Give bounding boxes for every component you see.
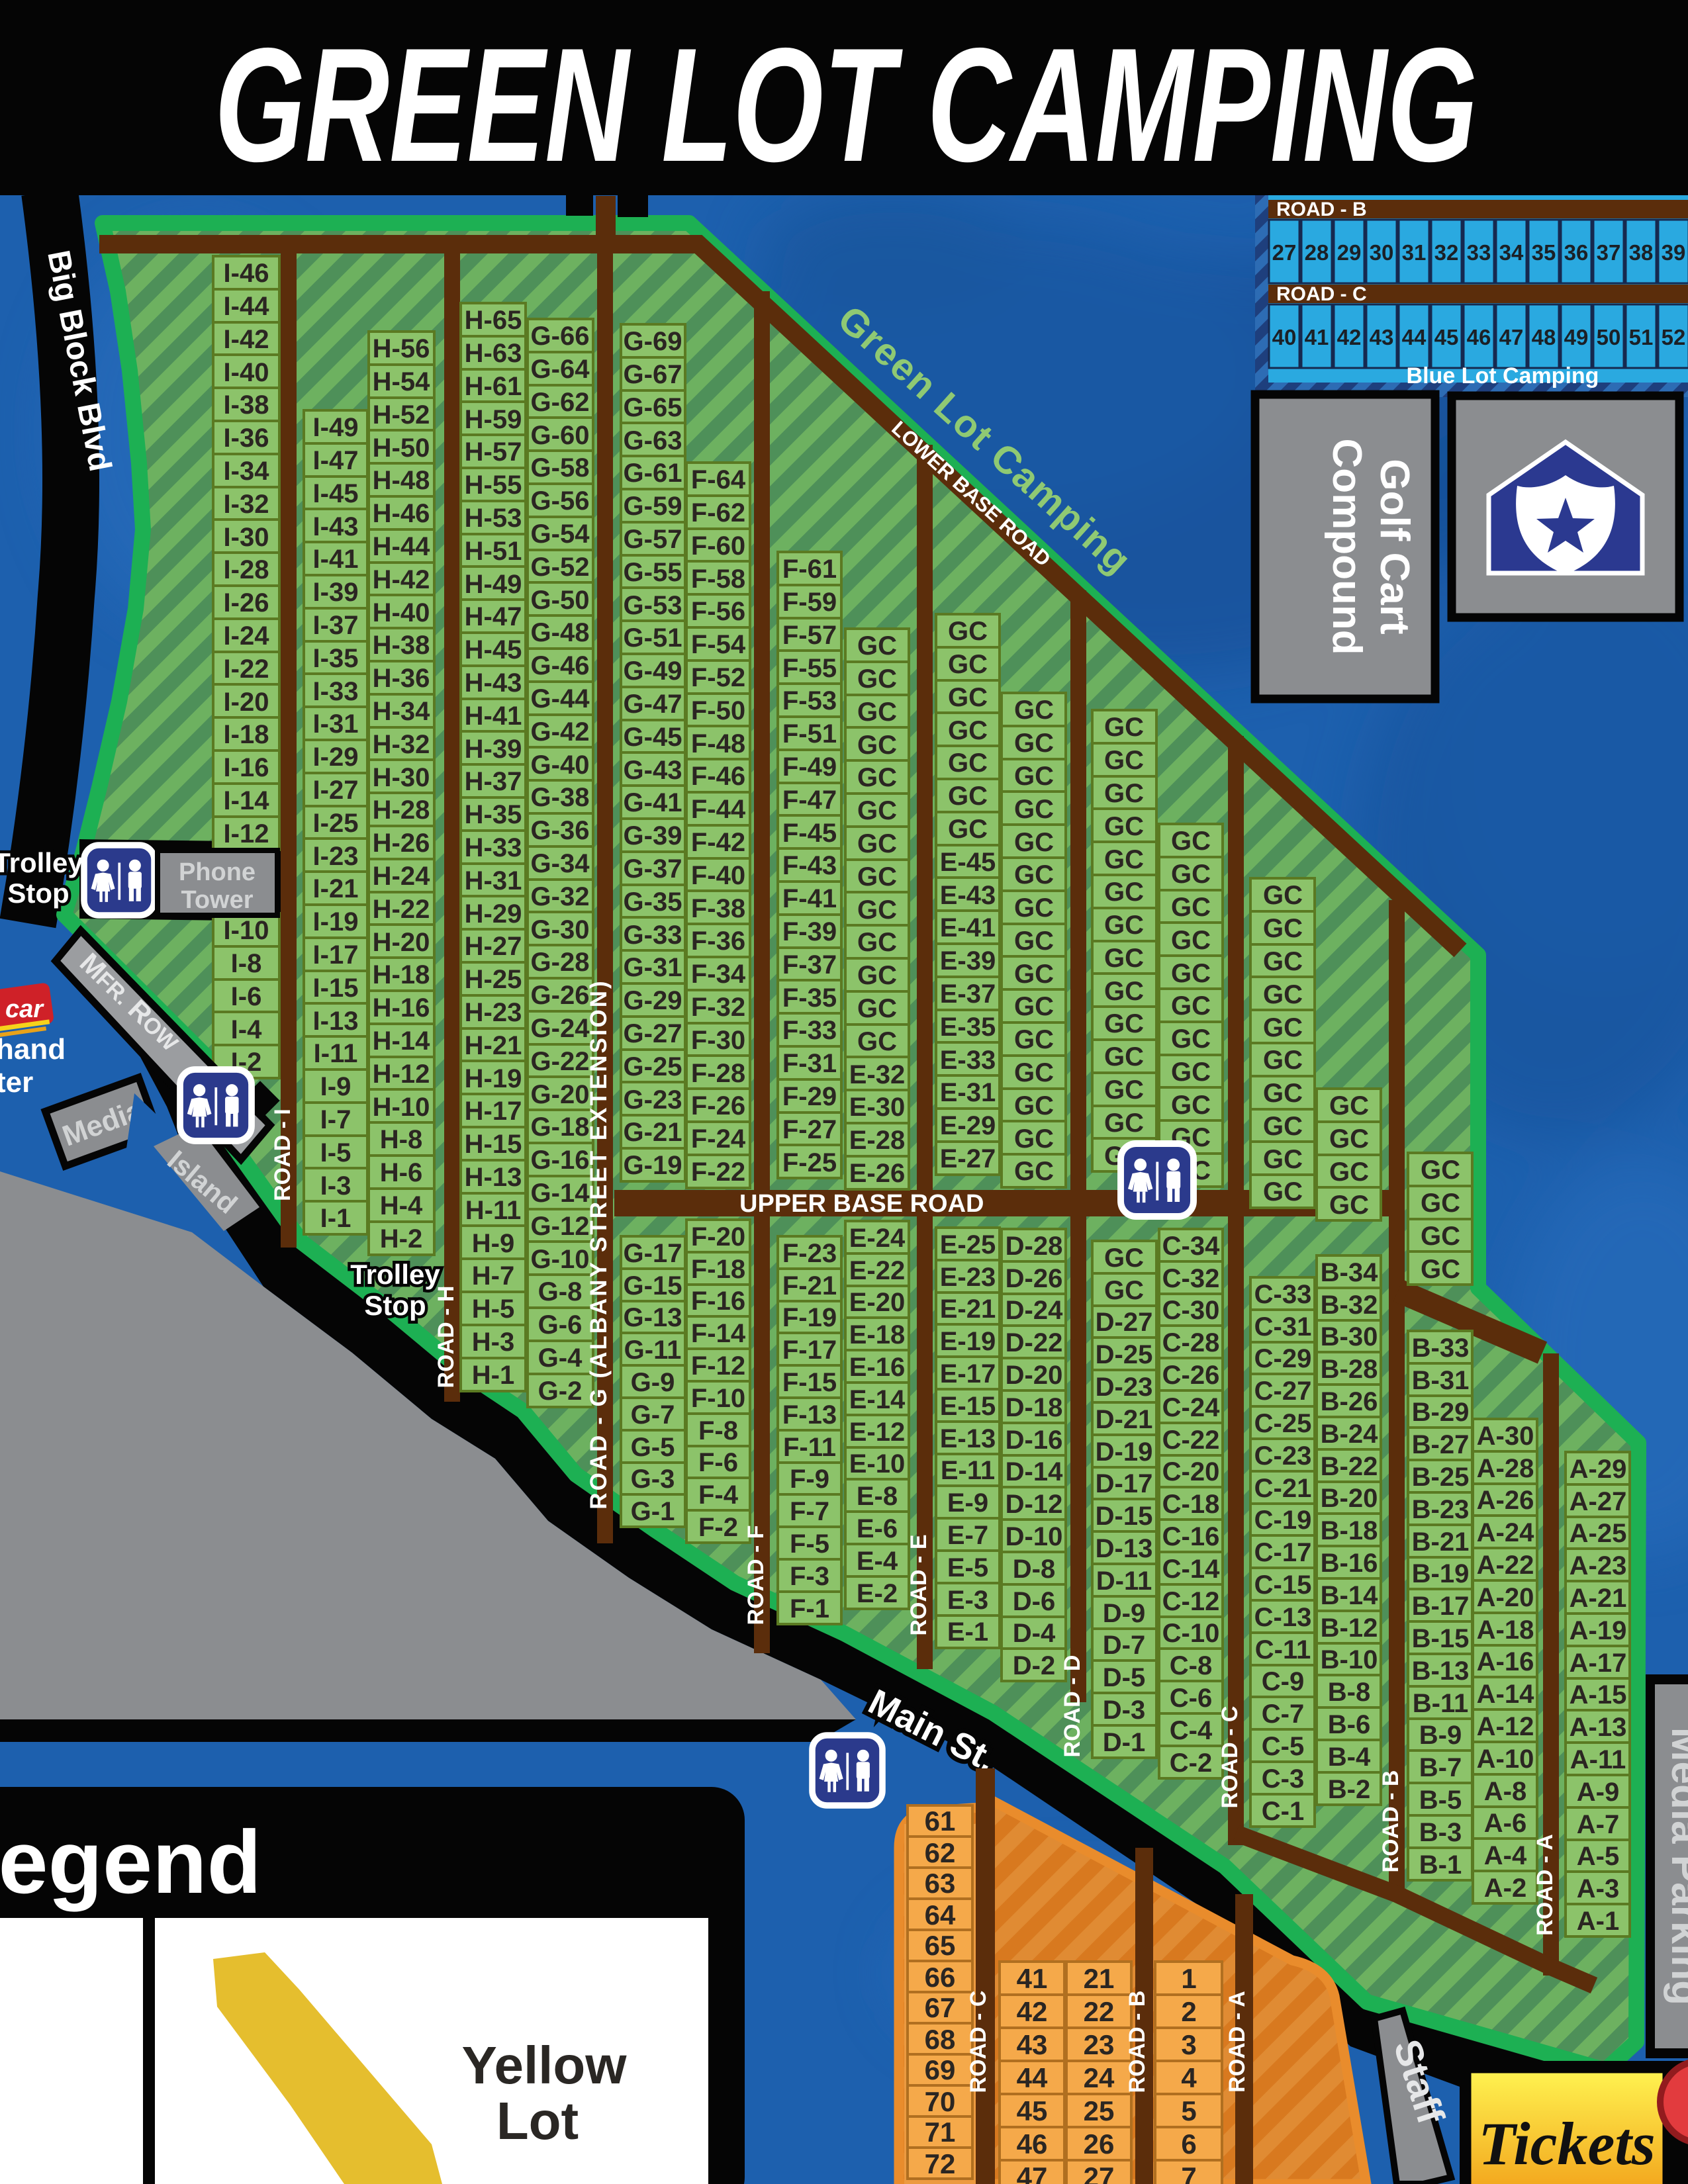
svg-text:F-6: F-6 bbox=[698, 1448, 738, 1477]
svg-text:G-33: G-33 bbox=[624, 921, 682, 950]
svg-text:GC: GC bbox=[1014, 1124, 1054, 1154]
svg-text:H-24: H-24 bbox=[373, 862, 430, 891]
svg-text:GC: GC bbox=[857, 631, 897, 660]
svg-text:47: 47 bbox=[1017, 2161, 1048, 2184]
svg-text:D-5: D-5 bbox=[1103, 1663, 1145, 1692]
svg-text:G-67: G-67 bbox=[624, 360, 682, 389]
svg-text:E-4: E-4 bbox=[857, 1547, 898, 1576]
svg-text:GC: GC bbox=[948, 650, 988, 679]
svg-text:I-3: I-3 bbox=[320, 1171, 352, 1201]
svg-text:F-38: F-38 bbox=[691, 894, 745, 923]
svg-text:C-22: C-22 bbox=[1162, 1426, 1220, 1455]
svg-text:C-4: C-4 bbox=[1170, 1716, 1213, 1745]
svg-text:ROAD - B: ROAD - B bbox=[1276, 199, 1367, 220]
svg-text:F-62: F-62 bbox=[691, 498, 745, 527]
svg-text:GC: GC bbox=[1014, 860, 1054, 889]
svg-text:C-9: C-9 bbox=[1262, 1667, 1304, 1696]
svg-text:F-1: F-1 bbox=[790, 1594, 829, 1623]
svg-text:ROAD - H: ROAD - H bbox=[434, 1286, 459, 1388]
svg-text:G-49: G-49 bbox=[624, 657, 682, 686]
svg-text:F-28: F-28 bbox=[691, 1059, 745, 1088]
svg-text:I-49: I-49 bbox=[313, 413, 359, 442]
svg-text:Stop: Stop bbox=[7, 878, 69, 909]
svg-text:I-22: I-22 bbox=[224, 655, 269, 684]
svg-text:I-39: I-39 bbox=[313, 578, 359, 607]
svg-text:C-11: C-11 bbox=[1255, 1635, 1311, 1664]
svg-text:G-50: G-50 bbox=[531, 586, 590, 615]
svg-text:D-19: D-19 bbox=[1096, 1437, 1153, 1467]
svg-text:B-29: B-29 bbox=[1412, 1398, 1470, 1427]
svg-text:G-55: G-55 bbox=[624, 558, 682, 587]
svg-text:Tower: Tower bbox=[181, 886, 253, 914]
svg-text:G-57: G-57 bbox=[624, 525, 682, 554]
svg-text:H-5: H-5 bbox=[472, 1295, 514, 1324]
svg-text:E-27: E-27 bbox=[940, 1144, 996, 1173]
svg-text:D-15: D-15 bbox=[1096, 1502, 1153, 1531]
svg-text:H-14: H-14 bbox=[373, 1026, 430, 1056]
svg-text:GC: GC bbox=[948, 749, 988, 778]
svg-text:I-43: I-43 bbox=[313, 512, 359, 541]
svg-text:GC: GC bbox=[1329, 1191, 1369, 1220]
svg-text:G-5: G-5 bbox=[631, 1433, 675, 1462]
svg-text:I-24: I-24 bbox=[224, 621, 270, 651]
svg-text:F-43: F-43 bbox=[782, 851, 837, 880]
svg-text:E-24: E-24 bbox=[849, 1224, 906, 1253]
svg-text:I-36: I-36 bbox=[224, 424, 269, 453]
svg-text:GC: GC bbox=[857, 763, 897, 792]
svg-text:UPPER BASE ROAD: UPPER BASE ROAD bbox=[739, 1190, 984, 1218]
svg-text:H-65: H-65 bbox=[465, 306, 522, 335]
svg-text:F-29: F-29 bbox=[782, 1082, 837, 1111]
svg-text:E-12: E-12 bbox=[849, 1418, 906, 1447]
svg-text:ROAD - D: ROAD - D bbox=[1060, 1655, 1085, 1758]
svg-text:GC: GC bbox=[857, 862, 897, 891]
svg-text:24: 24 bbox=[1084, 2062, 1115, 2093]
svg-text:B-33: B-33 bbox=[1412, 1334, 1470, 1363]
svg-text:GC: GC bbox=[1171, 991, 1211, 1021]
svg-text:26: 26 bbox=[1084, 2128, 1115, 2160]
svg-text:47: 47 bbox=[1499, 325, 1524, 349]
svg-text:E-43: E-43 bbox=[940, 881, 996, 910]
svg-text:GC: GC bbox=[1171, 1024, 1211, 1054]
svg-text:I-11: I-11 bbox=[314, 1039, 358, 1068]
svg-text:G-18: G-18 bbox=[531, 1113, 590, 1142]
svg-text:G-54: G-54 bbox=[531, 520, 590, 549]
svg-text:F-35: F-35 bbox=[782, 983, 837, 1013]
svg-text:Yellow: Yellow bbox=[462, 2036, 628, 2095]
svg-text:E-33: E-33 bbox=[940, 1046, 996, 1075]
svg-text:Blue Lot Camping: Blue Lot Camping bbox=[1407, 363, 1599, 388]
svg-text:G-37: G-37 bbox=[624, 854, 682, 884]
svg-text:B-5: B-5 bbox=[1419, 1786, 1462, 1815]
svg-text:GC: GC bbox=[1421, 1255, 1460, 1284]
svg-text:C-19: C-19 bbox=[1254, 1506, 1312, 1535]
svg-text:G-13: G-13 bbox=[624, 1303, 682, 1332]
svg-text:G-63: G-63 bbox=[624, 426, 682, 455]
svg-text:H-37: H-37 bbox=[465, 767, 522, 796]
svg-text:B-9: B-9 bbox=[1419, 1721, 1462, 1750]
svg-text:F-5: F-5 bbox=[790, 1529, 829, 1559]
svg-text:I-16: I-16 bbox=[224, 753, 269, 782]
svg-text:F-57: F-57 bbox=[782, 621, 837, 650]
svg-text:ROAD - E: ROAD - E bbox=[906, 1535, 931, 1636]
svg-text:I-7: I-7 bbox=[320, 1105, 352, 1134]
svg-text:H-12: H-12 bbox=[373, 1060, 430, 1089]
svg-text:E-41: E-41 bbox=[940, 913, 996, 942]
svg-text:B-2: B-2 bbox=[1328, 1775, 1370, 1804]
svg-text:A-17: A-17 bbox=[1570, 1649, 1627, 1678]
svg-text:H-57: H-57 bbox=[465, 437, 522, 467]
svg-text:I-44: I-44 bbox=[224, 292, 270, 321]
svg-text:50: 50 bbox=[1597, 325, 1621, 349]
svg-text:D-13: D-13 bbox=[1096, 1534, 1153, 1563]
svg-text:GC: GC bbox=[1104, 1276, 1144, 1305]
svg-text:B-13: B-13 bbox=[1412, 1657, 1470, 1686]
svg-text:GC: GC bbox=[857, 698, 897, 727]
svg-text:H-6: H-6 bbox=[380, 1158, 422, 1187]
svg-text:I-41: I-41 bbox=[313, 545, 359, 574]
svg-text:H-17: H-17 bbox=[465, 1097, 522, 1126]
svg-text:GC: GC bbox=[1263, 881, 1303, 910]
svg-text:GC: GC bbox=[1104, 812, 1144, 841]
svg-text:38: 38 bbox=[1629, 240, 1654, 265]
svg-text:G-22: G-22 bbox=[531, 1047, 590, 1076]
svg-text:GC: GC bbox=[1104, 911, 1144, 940]
svg-text:A-12: A-12 bbox=[1477, 1712, 1534, 1741]
svg-text:H-40: H-40 bbox=[373, 598, 430, 627]
svg-text:48: 48 bbox=[1532, 325, 1556, 349]
svg-text:GREEN LOT CAMPING: GREEN LOT CAMPING bbox=[214, 14, 1477, 195]
svg-text:B-4: B-4 bbox=[1328, 1743, 1371, 1772]
svg-text:E-31: E-31 bbox=[940, 1078, 996, 1107]
svg-text:GC: GC bbox=[1014, 762, 1054, 791]
svg-text:ROAD - F: ROAD - F bbox=[743, 1525, 769, 1625]
svg-text:ROAD - G (ALBANY STREET EXTENS: ROAD - G (ALBANY STREET EXTENSION) bbox=[586, 979, 612, 1509]
svg-text:33: 33 bbox=[1467, 240, 1491, 265]
svg-text:21: 21 bbox=[1084, 1963, 1115, 1994]
svg-text:H-28: H-28 bbox=[373, 796, 430, 825]
svg-text:H-13: H-13 bbox=[465, 1163, 522, 1192]
svg-text:B-24: B-24 bbox=[1321, 1420, 1378, 1449]
svg-text:H-16: H-16 bbox=[373, 993, 430, 1023]
svg-text:GC: GC bbox=[1263, 1013, 1303, 1042]
svg-text:35: 35 bbox=[1532, 240, 1556, 265]
svg-text:F-54: F-54 bbox=[691, 630, 746, 659]
svg-text:F-22: F-22 bbox=[691, 1158, 745, 1187]
svg-text:I-26: I-26 bbox=[224, 588, 269, 617]
svg-text:GC: GC bbox=[1104, 944, 1144, 973]
svg-text:F-15: F-15 bbox=[782, 1368, 837, 1397]
svg-text:G-25: G-25 bbox=[624, 1052, 682, 1081]
svg-text:71: 71 bbox=[925, 2116, 956, 2148]
svg-text:G-29: G-29 bbox=[624, 986, 682, 1015]
svg-text:43: 43 bbox=[1017, 2029, 1048, 2060]
svg-text:H-36: H-36 bbox=[373, 664, 430, 693]
svg-text:23: 23 bbox=[1084, 2029, 1115, 2060]
svg-text:GC: GC bbox=[1104, 1244, 1144, 1273]
svg-text:D-27: D-27 bbox=[1096, 1308, 1153, 1337]
svg-text:I-14: I-14 bbox=[224, 786, 270, 815]
svg-text:E-2: E-2 bbox=[857, 1579, 898, 1608]
svg-text:G-52: G-52 bbox=[531, 553, 590, 582]
svg-text:40: 40 bbox=[1272, 325, 1297, 349]
svg-text:G-21: G-21 bbox=[624, 1118, 682, 1147]
svg-text:4: 4 bbox=[1181, 2062, 1197, 2093]
svg-text:C-8: C-8 bbox=[1170, 1651, 1212, 1680]
svg-text:E-29: E-29 bbox=[940, 1111, 996, 1140]
svg-text:46: 46 bbox=[1467, 325, 1491, 349]
svg-text:hand: hand bbox=[0, 1033, 66, 1066]
svg-text:F-24: F-24 bbox=[691, 1124, 746, 1154]
svg-text:E-19: E-19 bbox=[940, 1327, 996, 1356]
svg-text:51: 51 bbox=[1629, 325, 1654, 349]
svg-text:H-10: H-10 bbox=[373, 1093, 430, 1122]
svg-text:GC: GC bbox=[1104, 1075, 1144, 1105]
svg-text:GC: GC bbox=[857, 895, 897, 925]
svg-text:41: 41 bbox=[1017, 1963, 1048, 1994]
svg-text:GC: GC bbox=[1171, 893, 1211, 922]
svg-text:A-14: A-14 bbox=[1477, 1680, 1534, 1709]
svg-text:34: 34 bbox=[1499, 240, 1524, 265]
svg-text:E-26: E-26 bbox=[849, 1159, 906, 1188]
svg-text:GC: GC bbox=[1014, 828, 1054, 857]
svg-text:B-23: B-23 bbox=[1412, 1495, 1470, 1524]
svg-text:F-55: F-55 bbox=[782, 654, 837, 683]
svg-text:C-15: C-15 bbox=[1254, 1570, 1312, 1600]
svg-text:42: 42 bbox=[1337, 325, 1362, 349]
svg-text:F-61: F-61 bbox=[782, 555, 837, 584]
svg-text:D-1: D-1 bbox=[1103, 1728, 1145, 1757]
svg-text:45: 45 bbox=[1434, 325, 1459, 349]
svg-text:G-66: G-66 bbox=[531, 322, 590, 351]
svg-text:G-27: G-27 bbox=[624, 1019, 682, 1048]
svg-text:D-12: D-12 bbox=[1006, 1490, 1063, 1519]
svg-text:E-30: E-30 bbox=[849, 1093, 906, 1122]
svg-text:C-27: C-27 bbox=[1254, 1377, 1312, 1406]
svg-text:G-43: G-43 bbox=[624, 756, 682, 785]
svg-text:I-23: I-23 bbox=[313, 842, 359, 871]
svg-text:F-3: F-3 bbox=[790, 1562, 829, 1591]
svg-text:I-37: I-37 bbox=[313, 611, 359, 640]
svg-text:H-63: H-63 bbox=[465, 339, 522, 368]
svg-text:I-8: I-8 bbox=[231, 949, 262, 978]
svg-text:C-33: C-33 bbox=[1254, 1280, 1312, 1309]
svg-text:36: 36 bbox=[1564, 240, 1589, 265]
svg-text:GC: GC bbox=[1104, 779, 1144, 808]
svg-text:H-43: H-43 bbox=[465, 668, 522, 698]
svg-text:F-36: F-36 bbox=[691, 927, 745, 956]
svg-text:B-15: B-15 bbox=[1412, 1624, 1470, 1653]
svg-text:E-37: E-37 bbox=[940, 979, 996, 1009]
svg-text:F-44: F-44 bbox=[691, 795, 746, 824]
svg-text:32: 32 bbox=[1434, 240, 1459, 265]
svg-text:E-32: E-32 bbox=[849, 1060, 906, 1089]
svg-text:GC: GC bbox=[1104, 1042, 1144, 1071]
svg-text:GC: GC bbox=[1329, 1158, 1369, 1187]
svg-text:H-47: H-47 bbox=[465, 602, 522, 631]
svg-text:F-49: F-49 bbox=[782, 752, 837, 782]
svg-text:GC: GC bbox=[1104, 878, 1144, 907]
svg-text:H-61: H-61 bbox=[465, 372, 522, 401]
svg-text:GC: GC bbox=[1014, 696, 1054, 725]
svg-text:I-45: I-45 bbox=[313, 479, 359, 508]
svg-text:C-13: C-13 bbox=[1254, 1603, 1312, 1632]
svg-text:G-20: G-20 bbox=[531, 1080, 590, 1109]
svg-text:GC: GC bbox=[1263, 1177, 1303, 1206]
svg-text:GC: GC bbox=[857, 829, 897, 858]
svg-text:E-21: E-21 bbox=[940, 1295, 996, 1324]
svg-text:G-24: G-24 bbox=[531, 1014, 590, 1043]
svg-text:30: 30 bbox=[1370, 240, 1394, 265]
svg-text:C-25: C-25 bbox=[1254, 1409, 1312, 1438]
svg-text:GC: GC bbox=[1263, 1046, 1303, 1075]
svg-text:F-58: F-58 bbox=[691, 565, 745, 594]
svg-text:H-4: H-4 bbox=[380, 1191, 423, 1220]
svg-text:H-38: H-38 bbox=[373, 631, 430, 660]
svg-text:H-59: H-59 bbox=[465, 405, 522, 434]
svg-text:F-14: F-14 bbox=[691, 1319, 746, 1348]
svg-text:GC: GC bbox=[857, 731, 897, 760]
svg-text:F-41: F-41 bbox=[782, 884, 837, 913]
svg-text:GC: GC bbox=[1014, 1058, 1054, 1087]
svg-text:F-64: F-64 bbox=[691, 465, 746, 494]
svg-text:H-15: H-15 bbox=[465, 1130, 522, 1159]
svg-text:H-41: H-41 bbox=[465, 702, 522, 731]
svg-text:28: 28 bbox=[1305, 240, 1329, 265]
svg-text:A-15: A-15 bbox=[1570, 1680, 1627, 1709]
svg-text:GC: GC bbox=[948, 617, 988, 646]
svg-text:G-23: G-23 bbox=[624, 1085, 682, 1115]
svg-text:GC: GC bbox=[1104, 713, 1144, 742]
svg-text:G-40: G-40 bbox=[531, 751, 590, 780]
svg-text:G-48: G-48 bbox=[531, 618, 590, 647]
svg-text:H-18: H-18 bbox=[373, 960, 430, 989]
svg-text:H-8: H-8 bbox=[380, 1125, 422, 1154]
svg-text:D-17: D-17 bbox=[1096, 1469, 1153, 1498]
svg-text:ter: ter bbox=[0, 1066, 33, 1099]
svg-text:G-58: G-58 bbox=[531, 453, 590, 482]
svg-text:Tickets: Tickets bbox=[1478, 2110, 1655, 2177]
svg-text:G-31: G-31 bbox=[624, 953, 682, 982]
svg-text:G-34: G-34 bbox=[531, 849, 590, 878]
svg-text:B-32: B-32 bbox=[1321, 1291, 1378, 1320]
svg-text:G-32: G-32 bbox=[531, 882, 590, 911]
svg-text:I-1: I-1 bbox=[320, 1204, 352, 1233]
svg-text:H-7: H-7 bbox=[472, 1261, 514, 1291]
svg-text:E-20: E-20 bbox=[849, 1288, 906, 1317]
svg-text:G-41: G-41 bbox=[624, 788, 682, 817]
svg-text:I-12: I-12 bbox=[224, 819, 269, 848]
svg-text:Compound: Compound bbox=[1324, 438, 1370, 655]
svg-text:F-20: F-20 bbox=[691, 1222, 745, 1251]
svg-text:69: 69 bbox=[925, 2054, 956, 2085]
svg-text:1: 1 bbox=[1181, 1963, 1196, 1994]
svg-text:G-39: G-39 bbox=[624, 821, 682, 850]
svg-text:GC: GC bbox=[857, 994, 897, 1023]
svg-text:GC: GC bbox=[1329, 1124, 1369, 1154]
svg-text:E-39: E-39 bbox=[940, 946, 996, 976]
svg-text:H-1: H-1 bbox=[472, 1361, 514, 1390]
svg-text:G-6: G-6 bbox=[538, 1310, 583, 1340]
svg-text:E-23: E-23 bbox=[940, 1263, 996, 1292]
svg-text:ROAD - I: ROAD - I bbox=[270, 1109, 295, 1201]
svg-text:Stop: Stop bbox=[364, 1290, 426, 1321]
svg-text:63: 63 bbox=[925, 1868, 956, 1899]
svg-text:H-20: H-20 bbox=[373, 928, 430, 957]
svg-text:H-50: H-50 bbox=[373, 433, 430, 463]
svg-text:C-24: C-24 bbox=[1162, 1393, 1220, 1422]
svg-text:H-54: H-54 bbox=[373, 367, 430, 396]
svg-text:H-48: H-48 bbox=[373, 466, 430, 495]
svg-text:F-59: F-59 bbox=[782, 588, 837, 617]
svg-text:B-8: B-8 bbox=[1328, 1678, 1370, 1707]
svg-text:B-31: B-31 bbox=[1412, 1366, 1470, 1395]
svg-text:D-22: D-22 bbox=[1006, 1328, 1063, 1357]
svg-text:A-30: A-30 bbox=[1477, 1422, 1534, 1451]
svg-text:A-8: A-8 bbox=[1484, 1777, 1526, 1806]
svg-text:D-18: D-18 bbox=[1006, 1393, 1063, 1422]
svg-text:D-26: D-26 bbox=[1006, 1264, 1063, 1293]
svg-text:GC: GC bbox=[1171, 1058, 1211, 1087]
svg-text:Trolley: Trolley bbox=[350, 1259, 440, 1290]
svg-text:F-33: F-33 bbox=[782, 1016, 837, 1045]
svg-text:A-11: A-11 bbox=[1570, 1745, 1626, 1774]
svg-text:G-2: G-2 bbox=[538, 1377, 583, 1406]
svg-text:G-60: G-60 bbox=[531, 421, 590, 450]
svg-text:GC: GC bbox=[1014, 992, 1054, 1021]
svg-text:H-22: H-22 bbox=[373, 895, 430, 924]
svg-text:A-21: A-21 bbox=[1570, 1584, 1627, 1613]
svg-text:F-60: F-60 bbox=[691, 531, 745, 561]
svg-text:GC: GC bbox=[1014, 795, 1054, 824]
svg-text:F-16: F-16 bbox=[691, 1287, 745, 1316]
svg-text:H-21: H-21 bbox=[465, 1031, 522, 1060]
svg-text:D-7: D-7 bbox=[1103, 1631, 1145, 1660]
svg-text:67: 67 bbox=[925, 1992, 956, 2023]
svg-text:B-11: B-11 bbox=[1413, 1689, 1469, 1718]
svg-text:41: 41 bbox=[1305, 325, 1329, 349]
svg-text:F-31: F-31 bbox=[782, 1049, 837, 1078]
svg-text:D-23: D-23 bbox=[1096, 1373, 1153, 1402]
svg-text:E-11: E-11 bbox=[941, 1456, 995, 1485]
svg-text:GC: GC bbox=[948, 716, 988, 745]
svg-text:D-10: D-10 bbox=[1006, 1522, 1063, 1551]
svg-text:B-25: B-25 bbox=[1412, 1463, 1470, 1492]
svg-text:F-39: F-39 bbox=[782, 917, 837, 946]
svg-text:F-19: F-19 bbox=[782, 1303, 837, 1332]
svg-text:C-3: C-3 bbox=[1262, 1764, 1304, 1794]
svg-text:C-29: C-29 bbox=[1254, 1344, 1312, 1373]
svg-text:I-46: I-46 bbox=[224, 259, 269, 288]
svg-text:G-9: G-9 bbox=[631, 1368, 675, 1397]
svg-text:A-4: A-4 bbox=[1484, 1841, 1527, 1870]
svg-text:GC: GC bbox=[1171, 827, 1211, 856]
svg-text:G-14: G-14 bbox=[531, 1179, 590, 1208]
svg-text:C-34: C-34 bbox=[1162, 1232, 1220, 1261]
svg-text:G-64: G-64 bbox=[531, 355, 590, 384]
svg-text:F-23: F-23 bbox=[782, 1239, 837, 1268]
svg-text:Phone: Phone bbox=[179, 858, 256, 886]
svg-text:ROAD - B: ROAD - B bbox=[1378, 1770, 1403, 1873]
svg-text:A-3: A-3 bbox=[1577, 1874, 1619, 1903]
svg-text:F-52: F-52 bbox=[691, 663, 745, 692]
svg-text:car: car bbox=[5, 995, 44, 1023]
svg-text:F-9: F-9 bbox=[790, 1465, 829, 1494]
svg-text:GC: GC bbox=[1014, 893, 1054, 923]
svg-text:E-28: E-28 bbox=[849, 1126, 906, 1155]
svg-text:E-8: E-8 bbox=[857, 1482, 898, 1511]
svg-text:C-28: C-28 bbox=[1162, 1328, 1220, 1357]
